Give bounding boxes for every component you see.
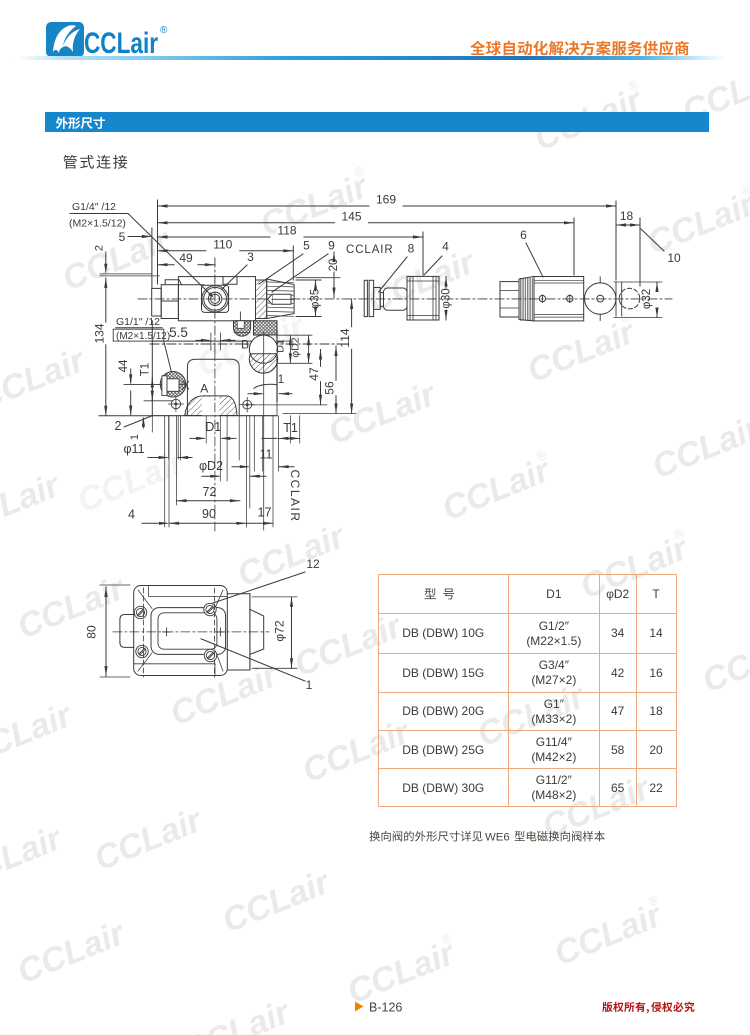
svg-text:6: 6 <box>520 228 527 242</box>
svg-text:CCLair: CCLair <box>647 409 750 487</box>
svg-text:20: 20 <box>328 259 340 272</box>
svg-text:CCLair: CCLair <box>0 819 68 897</box>
svg-text:T1: T1 <box>140 363 152 376</box>
svg-text:CCLair: CCLair <box>177 993 296 1035</box>
svg-text:CCLAIR: CCLAIR <box>288 469 302 522</box>
svg-text:8: 8 <box>408 242 415 256</box>
svg-text:1: 1 <box>129 434 141 440</box>
svg-text:10: 10 <box>667 251 681 265</box>
svg-text:B: B <box>241 338 249 352</box>
svg-text:11: 11 <box>260 448 273 462</box>
svg-text:φD2: φD2 <box>290 337 302 357</box>
svg-text:CCLair: CCLair <box>0 696 78 774</box>
svg-text:CCLair: CCLair <box>165 656 284 734</box>
svg-text:T1: T1 <box>283 421 298 435</box>
svg-text:2: 2 <box>94 245 106 251</box>
svg-text:4: 4 <box>128 508 135 522</box>
svg-text:4: 4 <box>442 240 449 254</box>
svg-text:1: 1 <box>278 374 284 386</box>
svg-text:CCLair: CCLair <box>89 801 208 879</box>
svg-text:WE6: WE6 <box>485 832 510 844</box>
svg-text:110: 110 <box>213 237 232 251</box>
svg-text:47: 47 <box>307 367 321 381</box>
svg-text:D1: D1 <box>205 420 221 434</box>
svg-text:A: A <box>200 382 208 396</box>
svg-text:CCLair: CCLair <box>642 185 750 263</box>
svg-text:CCLair: CCLair <box>0 341 91 419</box>
svg-text:φ35: φ35 <box>310 289 322 309</box>
svg-text:CCLair: CCLair <box>12 914 131 992</box>
svg-text:56: 56 <box>323 381 337 395</box>
svg-text:G1/4″ /12: G1/4″ /12 <box>72 201 116 213</box>
svg-text:CCLair: CCLair <box>232 517 351 595</box>
svg-text:145: 145 <box>341 209 361 223</box>
svg-text:5: 5 <box>303 239 310 253</box>
svg-text:CCLair: CCLair <box>57 221 176 299</box>
svg-text:90: 90 <box>202 507 216 521</box>
svg-text:3: 3 <box>247 250 254 264</box>
svg-text:5: 5 <box>119 230 126 244</box>
svg-text:(M2×1.5/12): (M2×1.5/12) <box>69 218 126 230</box>
svg-text:5.5: 5.5 <box>169 325 188 340</box>
svg-text:118: 118 <box>277 224 296 238</box>
svg-text:φ32: φ32 <box>641 289 653 309</box>
svg-text:X: X <box>182 379 190 393</box>
svg-text:12: 12 <box>306 557 320 571</box>
svg-text:B-126: B-126 <box>369 1001 402 1015</box>
svg-text:φ30: φ30 <box>441 288 453 308</box>
svg-text:CCLair: CCLair <box>0 466 66 544</box>
svg-text:1: 1 <box>306 678 313 692</box>
svg-text:CCLAIR: CCLAIR <box>346 244 394 256</box>
svg-text:17: 17 <box>258 506 272 520</box>
svg-text:134: 134 <box>92 323 106 343</box>
svg-text:D1: D1 <box>274 339 286 353</box>
svg-text:18: 18 <box>620 209 634 223</box>
svg-text:φ11: φ11 <box>123 442 144 456</box>
svg-text:80: 80 <box>85 625 99 639</box>
svg-text:CCLair: CCLair <box>697 623 750 701</box>
svg-text:44: 44 <box>118 359 130 372</box>
svg-text:(M2×1.5/12): (M2×1.5/12) <box>116 331 170 342</box>
svg-text:72: 72 <box>203 485 217 499</box>
svg-text:®: ® <box>160 25 168 36</box>
svg-text:G1/1″ /12: G1/1″ /12 <box>116 316 160 328</box>
svg-text:φ72: φ72 <box>273 620 287 641</box>
svg-text:169: 169 <box>376 193 396 207</box>
svg-text:CCLair: CCLair <box>12 569 131 647</box>
svg-text:9: 9 <box>328 239 335 253</box>
svg-text:CCLair: CCLair <box>217 863 336 941</box>
svg-text:φD2: φD2 <box>199 459 223 473</box>
svg-text:49: 49 <box>179 251 193 265</box>
svg-text:114: 114 <box>338 328 352 347</box>
svg-text:2: 2 <box>115 419 122 433</box>
